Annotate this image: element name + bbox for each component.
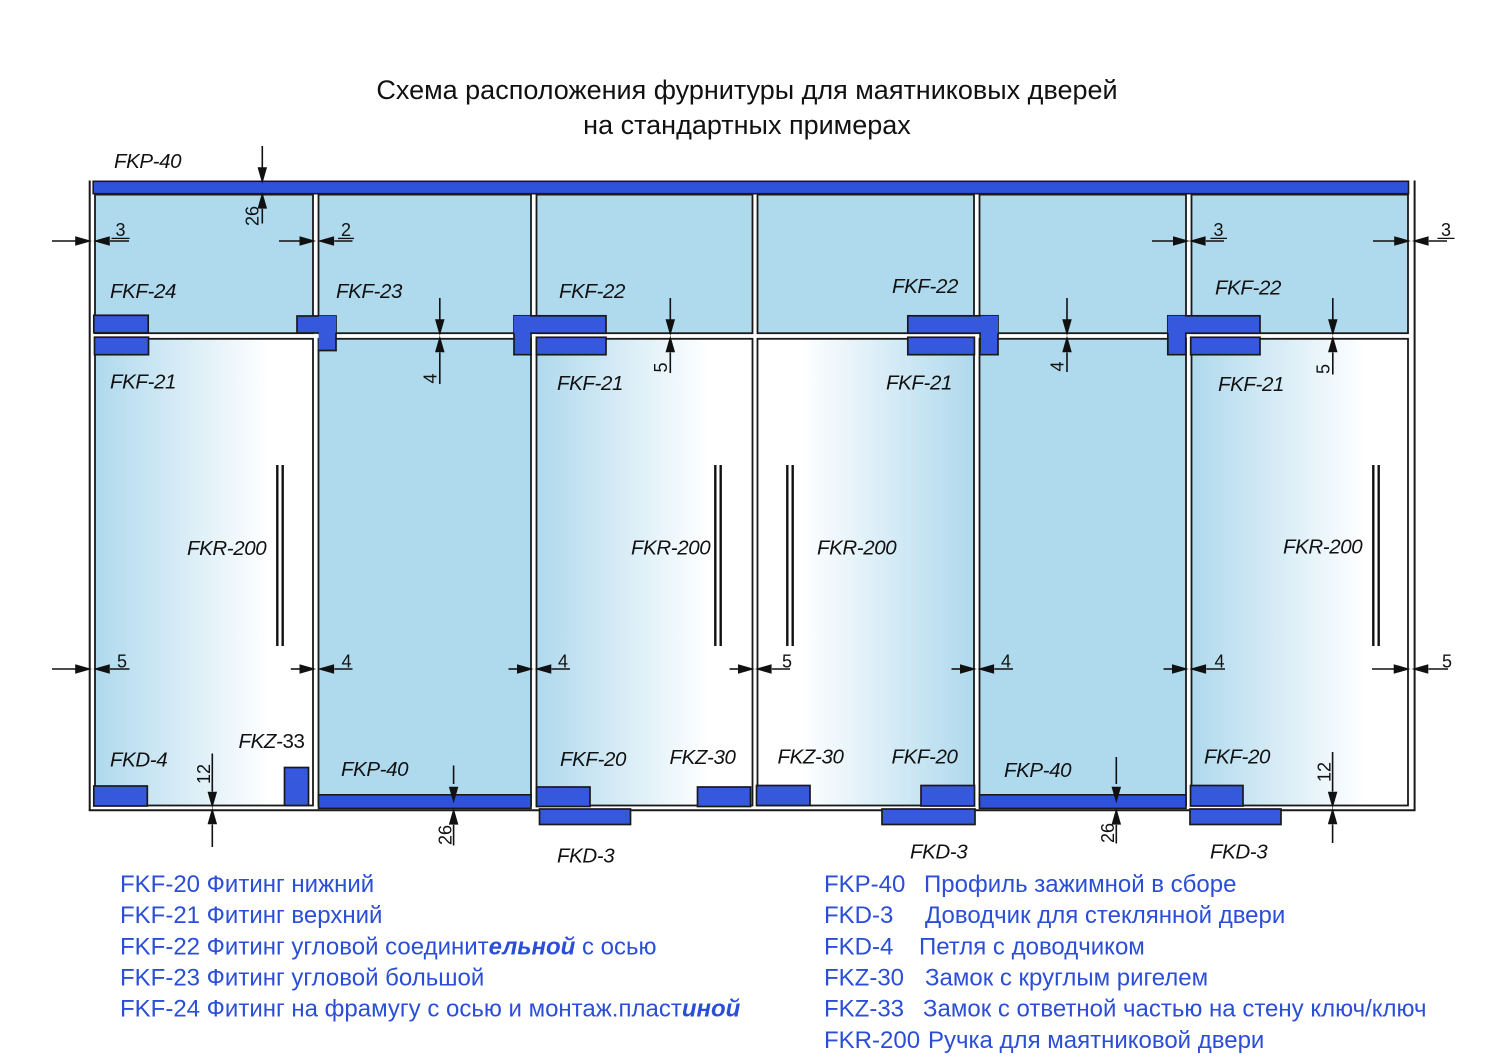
svg-text:FKF-21: FKF-21	[886, 372, 952, 395]
svg-text:FKF-22 Фитинг угловой соединит: FKF-22 Фитинг угловой соединительной с о…	[120, 933, 657, 960]
svg-text:FKR-200Ручка для маятниковой д: FKR-200Ручка для маятниковой двери	[824, 1027, 1264, 1054]
svg-text:5: 5	[651, 362, 671, 372]
svg-text:4: 4	[558, 652, 568, 672]
svg-text:FKD-3: FKD-3	[1210, 841, 1268, 864]
svg-text:2: 2	[341, 220, 351, 240]
svg-text:FKF-22: FKF-22	[892, 275, 959, 298]
svg-text:5: 5	[117, 652, 127, 672]
svg-text:FKF-23: FKF-23	[336, 280, 403, 303]
svg-text:FKF-22: FKF-22	[559, 280, 626, 303]
svg-text:FKF-21: FKF-21	[1218, 373, 1284, 396]
svg-text:4: 4	[341, 652, 351, 672]
svg-text:3: 3	[1213, 220, 1223, 240]
svg-text:FKZ-30: FKZ-30	[778, 746, 845, 769]
svg-text:Схема расположения фурнитуры д: Схема расположения фурнитуры для маятник…	[376, 75, 1117, 105]
svg-text:4: 4	[1214, 652, 1224, 672]
svg-text:5: 5	[782, 652, 792, 672]
svg-text:26: 26	[435, 825, 455, 845]
svg-text:4: 4	[1001, 652, 1011, 672]
svg-text:3: 3	[1441, 220, 1451, 240]
svg-text:4: 4	[421, 373, 441, 383]
svg-text:FKF-21: FKF-21	[557, 372, 623, 395]
svg-text:FKD-4Петля с доводчиком: FKD-4Петля с доводчиком	[824, 933, 1145, 960]
svg-text:FKD-3: FKD-3	[557, 845, 615, 868]
svg-text:12: 12	[194, 764, 214, 784]
svg-text:FKZ-30: FKZ-30	[670, 746, 737, 769]
svg-text:FKP-40Профиль зажимной в сборе: FKP-40Профиль зажимной в сборе	[824, 871, 1236, 898]
svg-text:FKD-3Доводчик для стеклянной д: FKD-3Доводчик для стеклянной двери	[824, 902, 1285, 929]
svg-text:FKR-200: FKR-200	[187, 537, 267, 560]
svg-text:5: 5	[1314, 364, 1334, 374]
svg-text:12: 12	[1314, 762, 1334, 782]
svg-text:FKP-40: FKP-40	[114, 150, 182, 173]
svg-text:FKF-20: FKF-20	[1204, 746, 1271, 769]
svg-text:3: 3	[115, 220, 125, 240]
svg-text:26: 26	[243, 206, 263, 226]
svg-text:FKZ-33: FKZ-33	[239, 730, 305, 753]
svg-text:FKF-21 Фитинг верхний: FKF-21 Фитинг верхний	[120, 902, 382, 929]
svg-text:FKD-4: FKD-4	[110, 749, 167, 772]
svg-text:на стандартных примерах: на стандартных примерах	[583, 110, 911, 140]
svg-text:FKD-3: FKD-3	[910, 841, 968, 864]
svg-text:4: 4	[1048, 361, 1068, 371]
svg-text:FKR-200: FKR-200	[631, 537, 711, 560]
svg-text:26: 26	[1098, 823, 1118, 843]
svg-text:FKP-40: FKP-40	[1004, 759, 1072, 782]
svg-text:FKF-20: FKF-20	[560, 748, 627, 771]
svg-text:5: 5	[1442, 652, 1452, 672]
svg-text:FKP-40: FKP-40	[341, 758, 409, 781]
svg-text:FKF-20 Фитинг нижний: FKF-20 Фитинг нижний	[120, 871, 374, 898]
svg-text:FKR-200: FKR-200	[1283, 536, 1363, 559]
svg-text:FKF-21: FKF-21	[110, 371, 176, 394]
svg-text:FKF-22: FKF-22	[1215, 277, 1282, 300]
svg-text:FKF-23 Фитинг угловой большой: FKF-23 Фитинг угловой большой	[120, 965, 484, 992]
svg-text:FKR-200: FKR-200	[817, 537, 897, 560]
svg-text:FKF-20: FKF-20	[892, 746, 959, 769]
svg-text:FKF-24 Фитинг на фрамугу с ось: FKF-24 Фитинг на фрамугу с осью и монтаж…	[120, 996, 741, 1023]
svg-text:FKZ-30Замок с круглым ригелем: FKZ-30Замок с круглым ригелем	[824, 965, 1208, 992]
svg-text:FKF-24: FKF-24	[110, 280, 176, 303]
